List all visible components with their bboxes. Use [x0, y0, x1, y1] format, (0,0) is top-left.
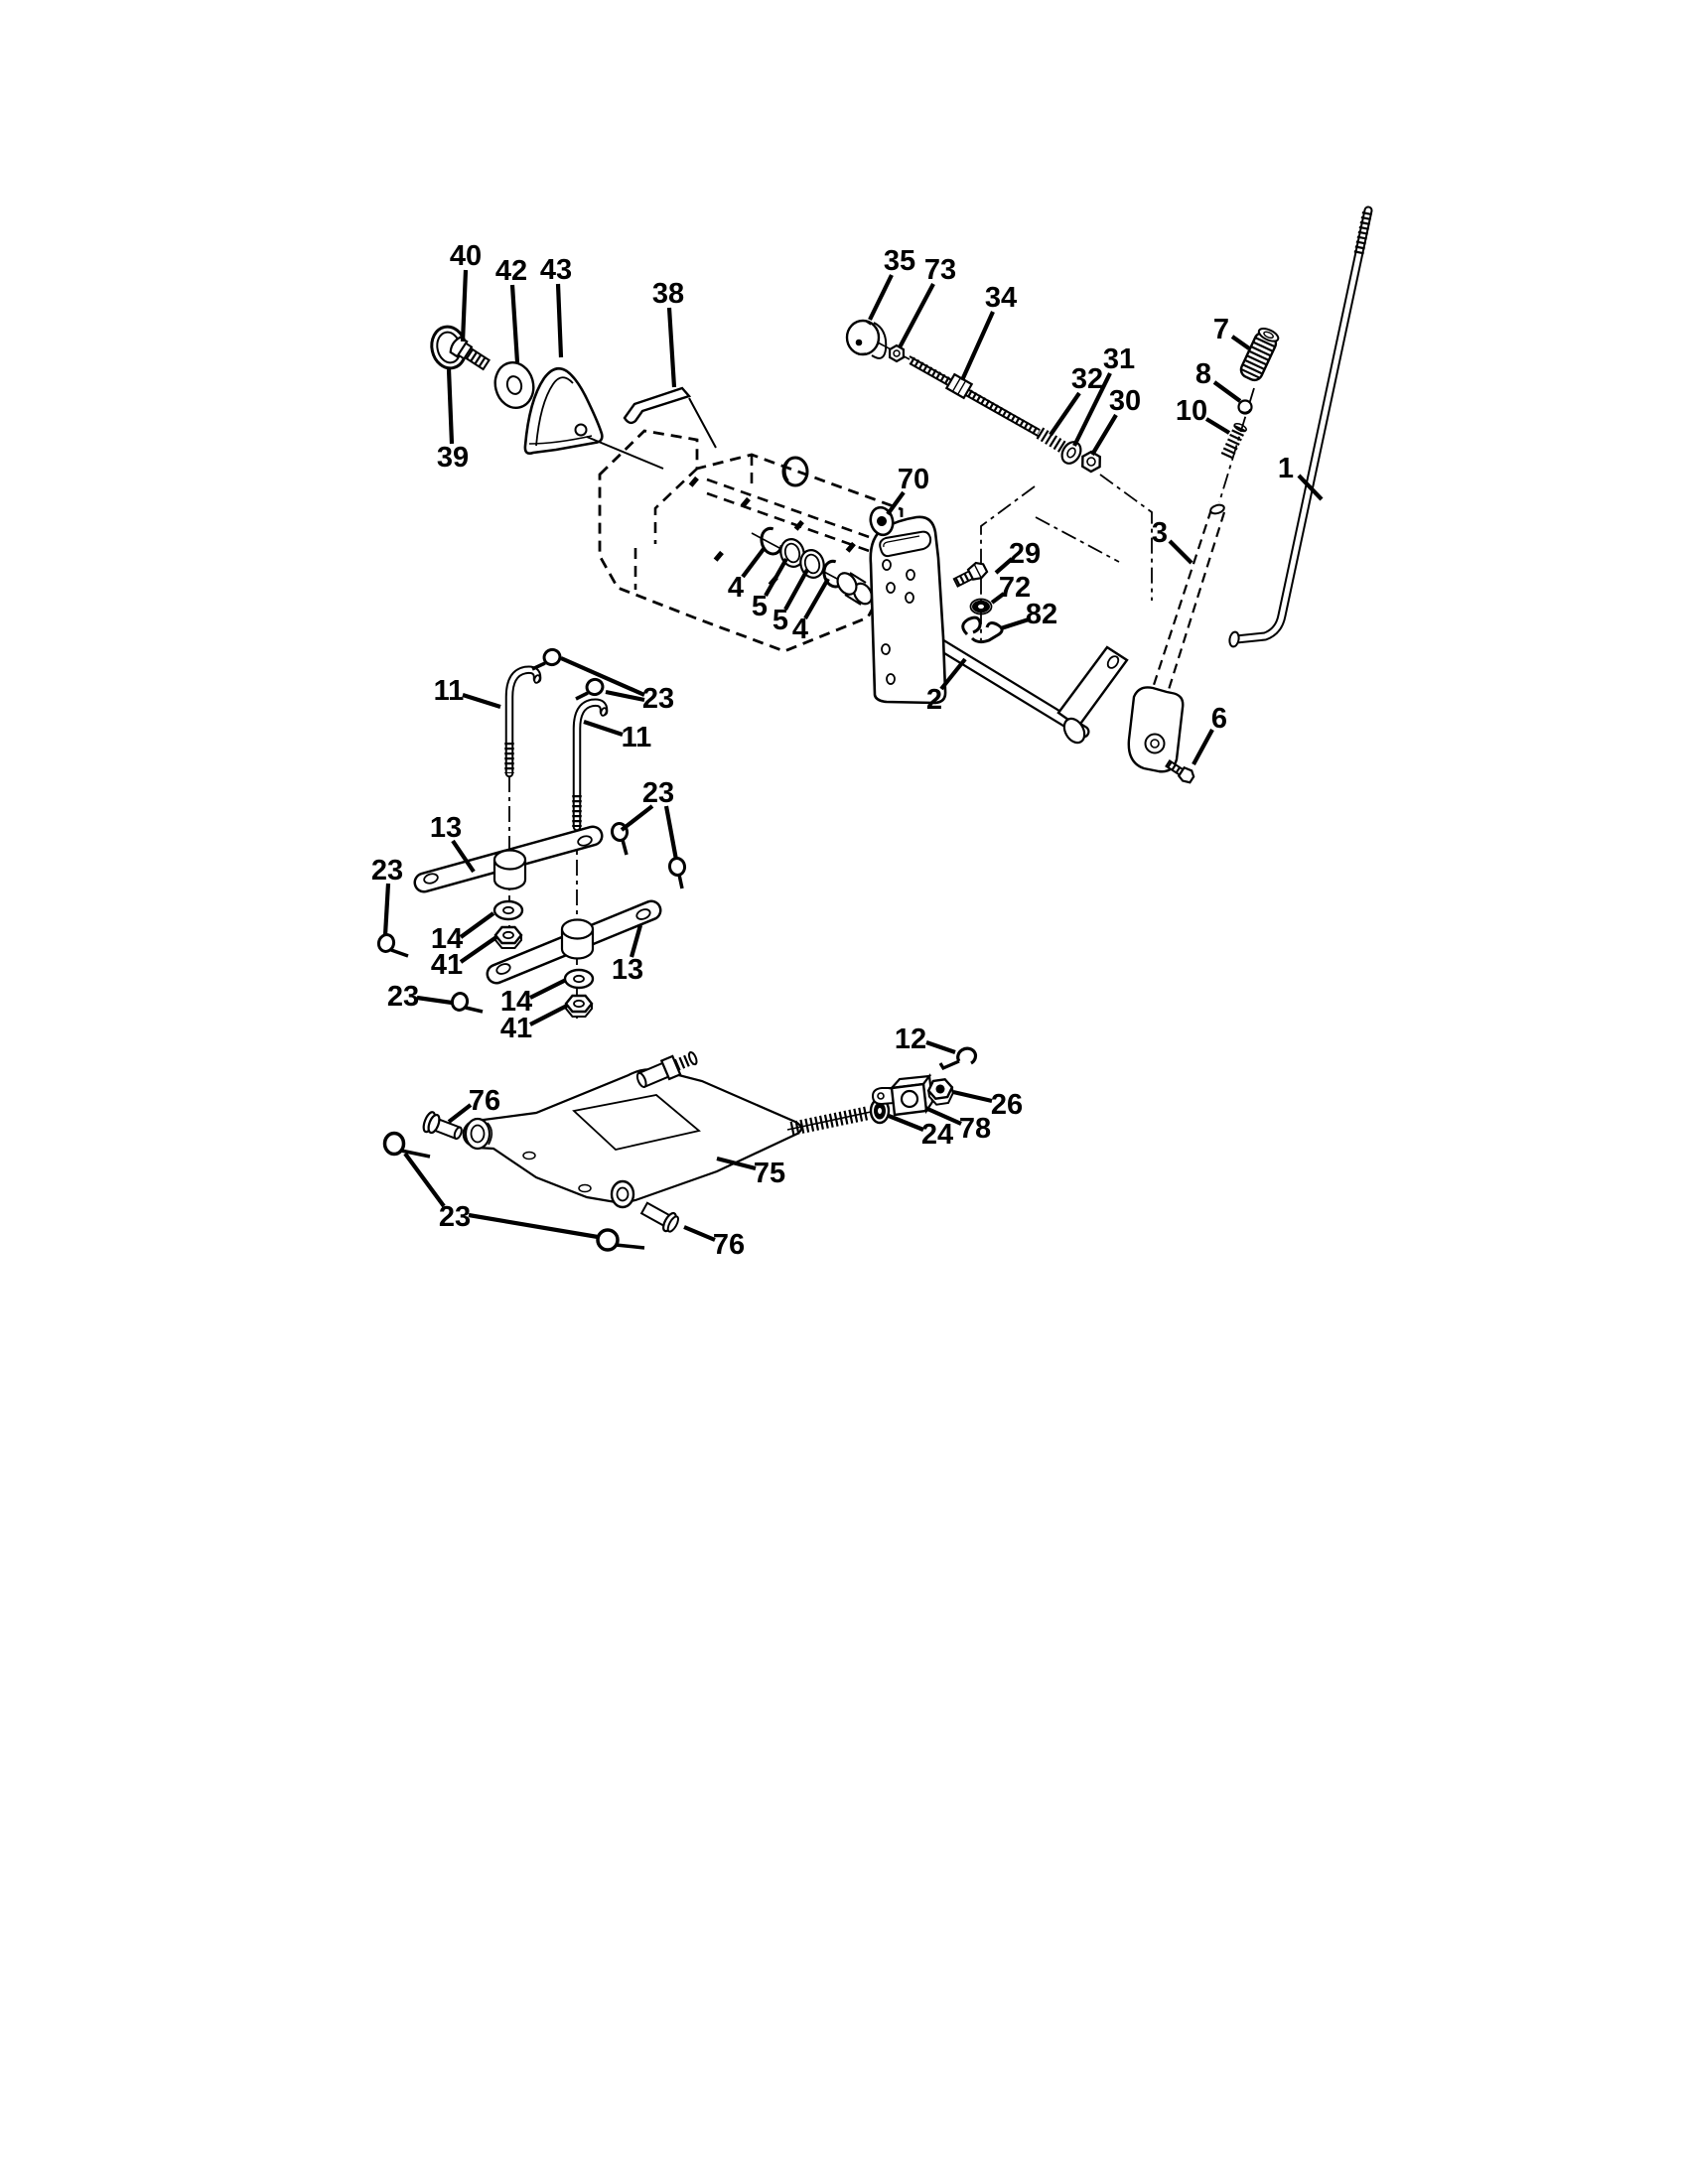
leader-line-5: [766, 559, 786, 596]
leader-line-23: [666, 806, 676, 860]
clip-23-bottom-a: [451, 992, 483, 1012]
callout-10: 10: [1176, 395, 1207, 427]
lift-lever-group: [1129, 210, 1368, 784]
callout-4: 4: [792, 614, 808, 645]
callout-70: 70: [898, 464, 929, 495]
leader-line-7: [1232, 337, 1249, 348]
callout-13: 13: [612, 954, 643, 986]
callout-38: 38: [652, 278, 684, 310]
leader-line-14: [461, 913, 493, 937]
callout-76: 76: [469, 1085, 500, 1117]
callout-3: 3: [1152, 517, 1168, 549]
leader-line-11: [463, 695, 500, 707]
callout-29: 29: [1009, 538, 1041, 570]
callout-31: 31: [1103, 343, 1135, 375]
washer-31: [1058, 439, 1084, 467]
bracket-43: [525, 368, 602, 453]
leader-line-23: [469, 1215, 598, 1237]
callout-4: 4: [728, 572, 744, 604]
leader-line-41: [530, 1006, 567, 1024]
leader-line-3: [1170, 541, 1192, 563]
callout-23: 23: [371, 855, 403, 887]
leader-line-5: [785, 570, 807, 610]
leader-line-13: [631, 925, 640, 957]
callout-34: 34: [985, 282, 1017, 314]
leader-line-6: [1193, 730, 1212, 764]
washer-14b: [565, 970, 593, 988]
clip-23-left: [377, 933, 408, 956]
leader-line-30: [1092, 415, 1116, 455]
frame-hub-bottom: [612, 1181, 633, 1207]
leader-line-23: [417, 998, 452, 1003]
clip-23-frame-bottom: [598, 1230, 644, 1250]
leader-line-23: [385, 884, 388, 935]
lift-frame-group: [385, 1048, 976, 1250]
diagram-page: 4042433839357334323130781013702972822455…: [0, 0, 1684, 2184]
leader-line-4: [805, 579, 828, 618]
callout-41: 41: [500, 1013, 532, 1044]
leader-line-23: [622, 806, 652, 830]
washer-42: [491, 358, 538, 412]
callout-6: 6: [1211, 703, 1227, 735]
callout-41: 41: [431, 949, 463, 981]
clip-23-mid2: [668, 857, 686, 888]
callout-11: 11: [434, 675, 465, 707]
leader-line-41: [461, 937, 496, 962]
callout-13: 13: [430, 812, 462, 844]
leader-line-4: [743, 549, 764, 577]
lever-hub: [1129, 687, 1183, 771]
callout-5: 5: [752, 591, 768, 622]
callout-23: 23: [642, 683, 674, 715]
knob-35: [847, 321, 886, 358]
leader-line-24: [889, 1116, 923, 1130]
clip-23-top2: [576, 677, 605, 699]
leader-line-14: [530, 980, 566, 998]
parts-diagram: 4042433839357334323130781013702972822455…: [0, 0, 1684, 2184]
callout-76: 76: [713, 1229, 745, 1261]
callout-12: 12: [895, 1024, 926, 1055]
callout-32: 32: [1071, 363, 1103, 395]
leader-line-42: [512, 285, 517, 362]
callout-40: 40: [450, 240, 482, 272]
callout-30: 30: [1109, 385, 1141, 417]
callout-8: 8: [1195, 358, 1211, 390]
callout-2: 2: [926, 684, 942, 716]
leader-line-76: [449, 1105, 471, 1122]
nut-41b: [566, 996, 592, 1017]
bolt-29: [952, 560, 989, 589]
leader-line-39: [449, 369, 452, 444]
leader-line-43: [558, 284, 561, 357]
rod-34: [910, 356, 1040, 437]
grip-7: [1238, 326, 1280, 382]
clip-23-frame-left: [385, 1134, 431, 1158]
callout-5: 5: [772, 605, 788, 636]
washer-72: [971, 600, 992, 614]
clip-82: [963, 617, 1002, 642]
leader-line-23: [405, 1154, 444, 1206]
callout-23: 23: [642, 777, 674, 809]
adjustment-rod-group: [847, 321, 1104, 475]
clip-38: [625, 388, 689, 423]
leader-line-76: [684, 1227, 715, 1240]
leader-line-73: [900, 284, 933, 347]
leader-line-11: [584, 722, 623, 735]
pin-76b: [639, 1199, 681, 1234]
leader-line-82: [1001, 619, 1029, 628]
leader-line-10: [1206, 419, 1229, 433]
leader-line-38: [669, 308, 674, 387]
washer-14a: [494, 901, 522, 919]
leader-line-26: [953, 1092, 992, 1101]
leader-line-35: [870, 275, 892, 320]
nut-41a: [495, 927, 521, 948]
callout-7: 7: [1213, 314, 1229, 345]
clip-23-top1: [532, 647, 562, 669]
callout-42: 42: [495, 255, 527, 287]
callout-78: 78: [959, 1113, 991, 1145]
ball-8: [1239, 401, 1252, 414]
shaft-arm: [1058, 647, 1127, 747]
rod-1: [1236, 210, 1368, 639]
nut-73: [887, 343, 908, 363]
frame-75: [464, 1069, 801, 1203]
leader-line-8: [1214, 382, 1240, 401]
leader-line-34: [962, 312, 993, 380]
callout-26: 26: [991, 1089, 1023, 1121]
leader-line-40: [463, 270, 466, 341]
callout-1: 1: [1278, 453, 1294, 484]
leader-line-12: [926, 1042, 955, 1052]
callout-24: 24: [921, 1119, 953, 1151]
bushing: [834, 570, 876, 608]
chassis-screws: [689, 478, 855, 586]
callout-35: 35: [884, 245, 915, 277]
callout-11: 11: [622, 722, 652, 753]
chassis-hole: [783, 458, 807, 485]
callout-82: 82: [1026, 599, 1057, 630]
bracket-plate: [871, 517, 945, 703]
callout-23: 23: [387, 981, 419, 1013]
spring-rod-24: [787, 1112, 871, 1130]
callout-75: 75: [754, 1158, 785, 1189]
callout-23: 23: [439, 1201, 471, 1233]
callout-43: 43: [540, 254, 572, 286]
callout-39: 39: [437, 442, 469, 474]
callout-73: 73: [924, 254, 956, 286]
clip-12: [940, 1048, 975, 1068]
leader-line-32: [1051, 393, 1079, 435]
